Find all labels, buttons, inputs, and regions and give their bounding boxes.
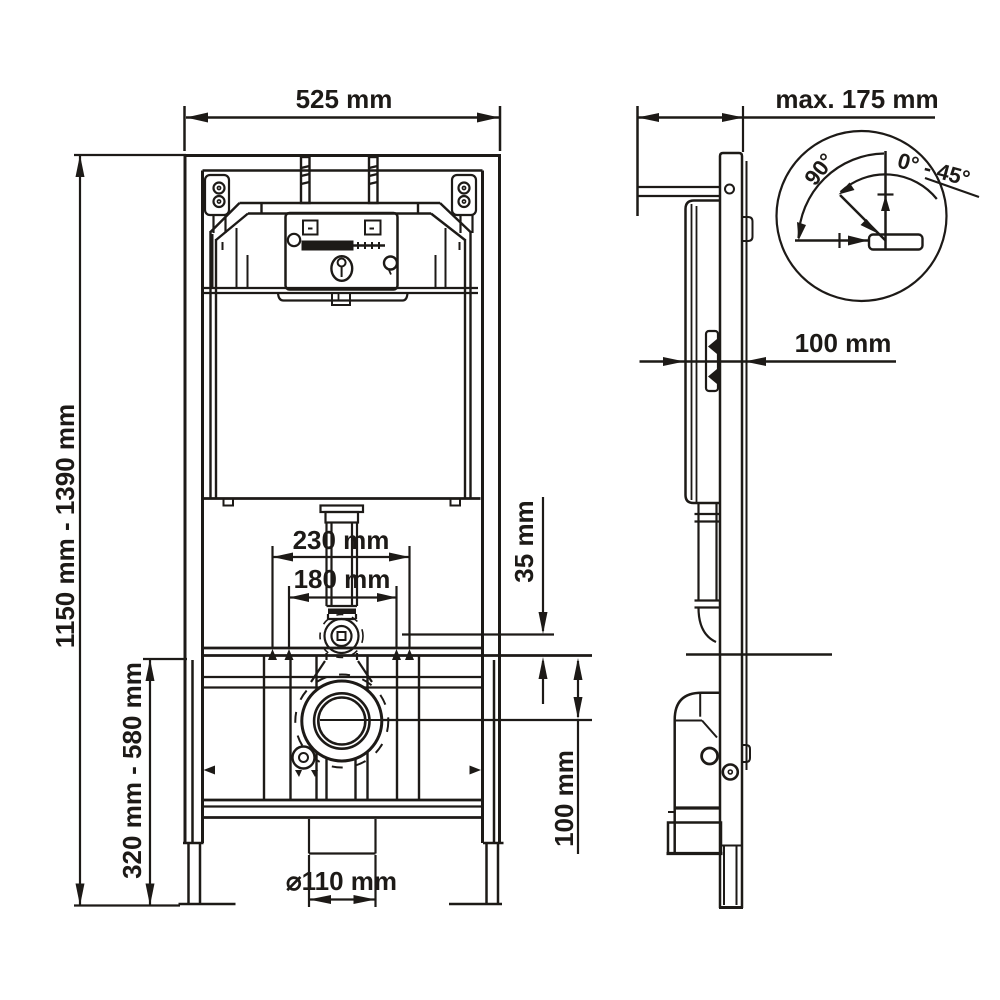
svg-text:⌀110 mm: ⌀110 mm — [286, 866, 397, 896]
svg-text:max. 175 mm: max. 175 mm — [775, 84, 938, 114]
svg-text:180 mm: 180 mm — [294, 564, 391, 594]
svg-text:35 mm: 35 mm — [509, 500, 539, 582]
svg-text:320 mm - 580 mm: 320 mm - 580 mm — [117, 662, 147, 879]
svg-text:230 mm: 230 mm — [293, 525, 390, 555]
svg-text:100 mm: 100 mm — [549, 750, 579, 847]
svg-text:100 mm: 100 mm — [795, 328, 892, 358]
svg-text:1150 mm - 1390 mm: 1150 mm - 1390 mm — [50, 404, 80, 648]
svg-text:525 mm: 525 mm — [296, 84, 393, 114]
